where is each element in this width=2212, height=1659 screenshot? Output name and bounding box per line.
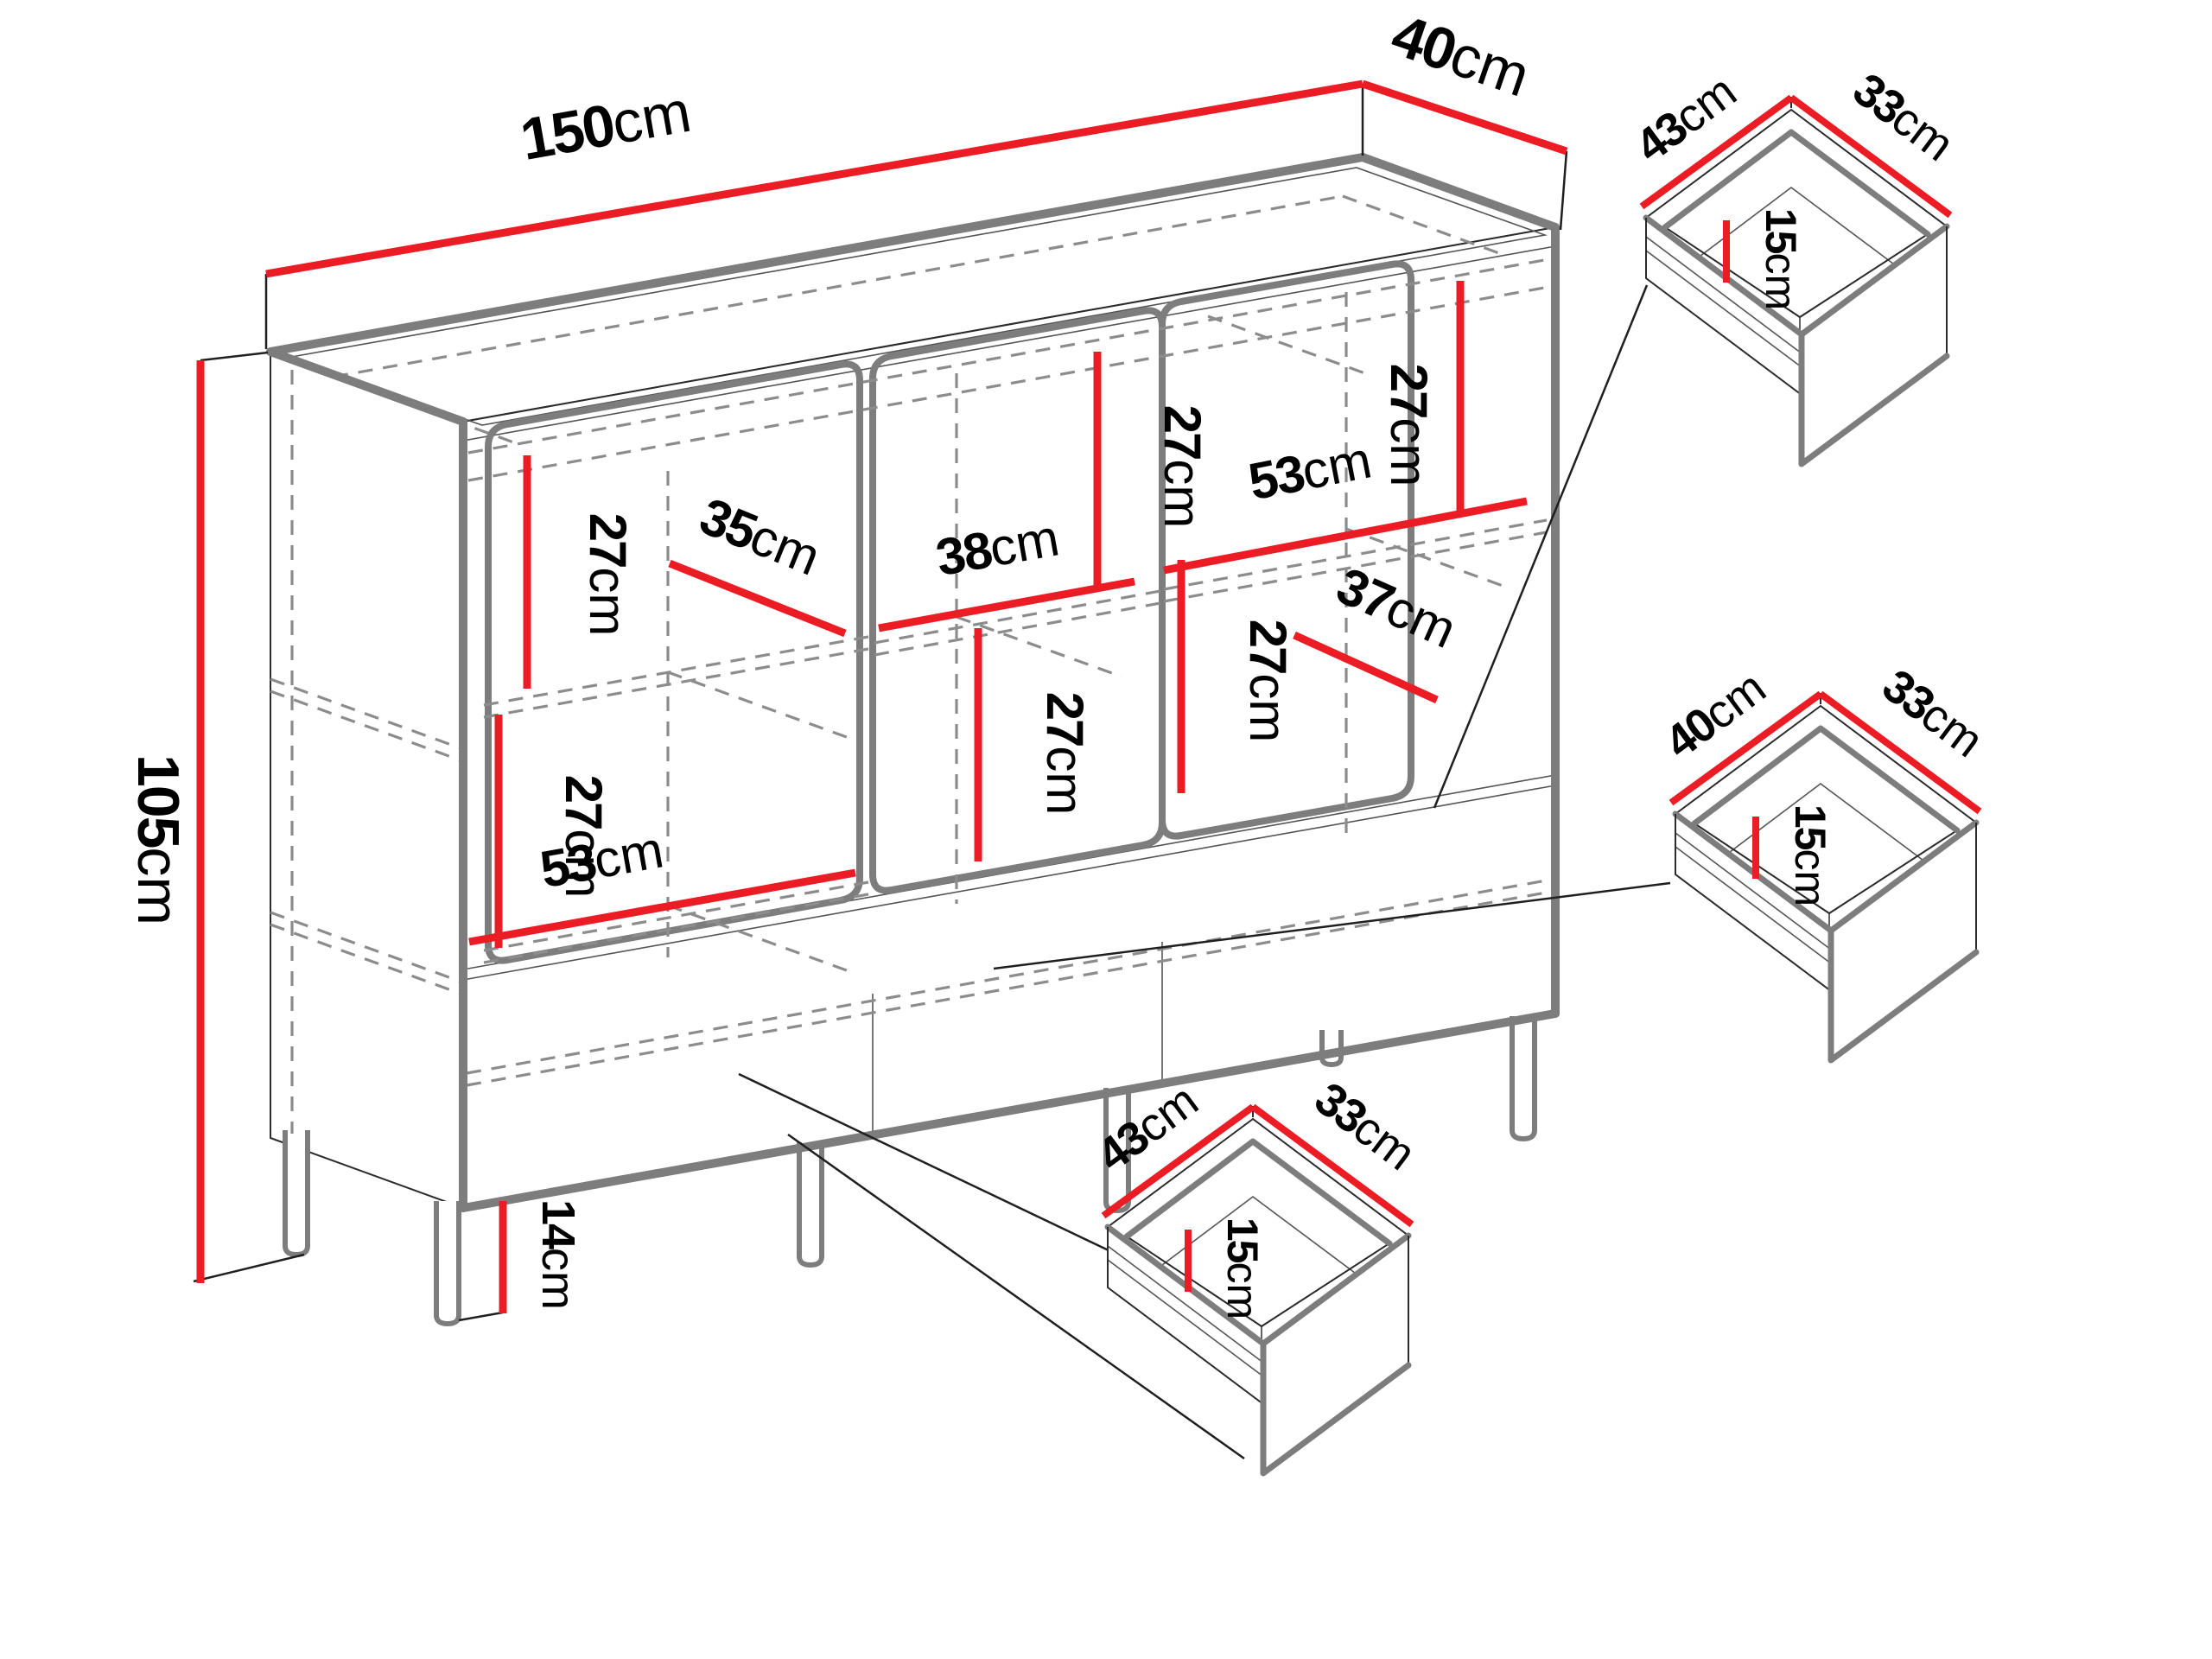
- dim-line-depth-40: [1363, 84, 1567, 151]
- label-leg-14: 14cm: [532, 1199, 584, 1310]
- label-drawer2-height-15: 15cm: [1786, 804, 1834, 906]
- cabinet-left-face: [270, 352, 463, 1208]
- label-drawer2-depth-33: 33cm: [1873, 659, 1993, 767]
- diagram-stage: 150cm 40cm 105cm 14cm 27cm 27cm 35cm 53c…: [0, 0, 2212, 1659]
- label-drawer3-depth-33: 33cm: [1306, 1072, 1425, 1180]
- leg-back-left: [285, 1130, 308, 1255]
- label-drawer3-height-15: 15cm: [1218, 1217, 1267, 1319]
- leg-front-middle-left: [799, 1142, 822, 1265]
- furniture-dimension-diagram: 150cm 40cm 105cm 14cm 27cm 27cm 35cm 53c…: [0, 0, 2212, 1659]
- leg-back-middle-right: [1322, 1030, 1341, 1065]
- leg-front-left: [436, 1201, 459, 1324]
- label-right-lower-27: 27cm: [1239, 620, 1297, 743]
- label-height-105: 105cm: [125, 754, 191, 925]
- label-left-upper-27: 27cm: [579, 513, 637, 637]
- leg-front-right: [1512, 1016, 1535, 1139]
- label-middle-lower-27: 27cm: [1036, 692, 1094, 816]
- label-depth-40: 40cm: [1383, 2, 1537, 110]
- label-drawer1-height-15: 15cm: [1757, 208, 1805, 310]
- label-drawer1-depth-33: 33cm: [1844, 63, 1963, 171]
- label-right-upper-27: 27cm: [1380, 364, 1438, 487]
- label-width-150: 150cm: [516, 79, 696, 173]
- label-middle-upper-27: 27cm: [1154, 405, 1211, 529]
